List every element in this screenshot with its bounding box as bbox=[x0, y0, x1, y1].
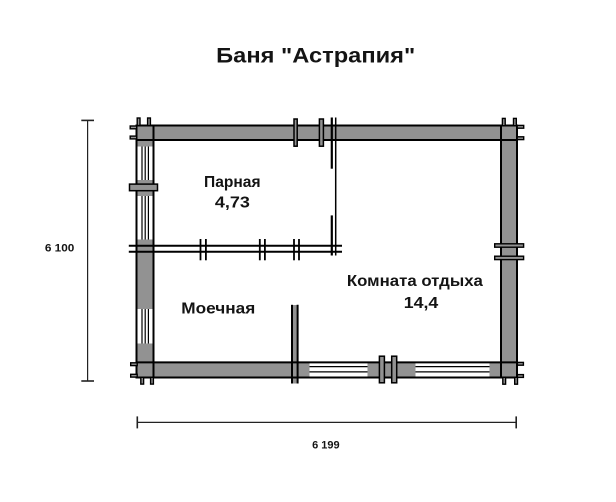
svg-text:14,4: 14,4 bbox=[404, 295, 439, 312]
svg-text:Комната отдыха: Комната отдыха bbox=[347, 273, 483, 290]
svg-text:Моечная: Моечная bbox=[181, 301, 255, 318]
svg-text:Парная: Парная bbox=[204, 174, 261, 191]
svg-text:6 100: 6 100 bbox=[45, 243, 75, 255]
svg-text:Баня "Астрапия": Баня "Астрапия" bbox=[216, 43, 415, 67]
svg-text:4,73: 4,73 bbox=[215, 195, 250, 212]
svg-text:6 199: 6 199 bbox=[312, 440, 340, 452]
